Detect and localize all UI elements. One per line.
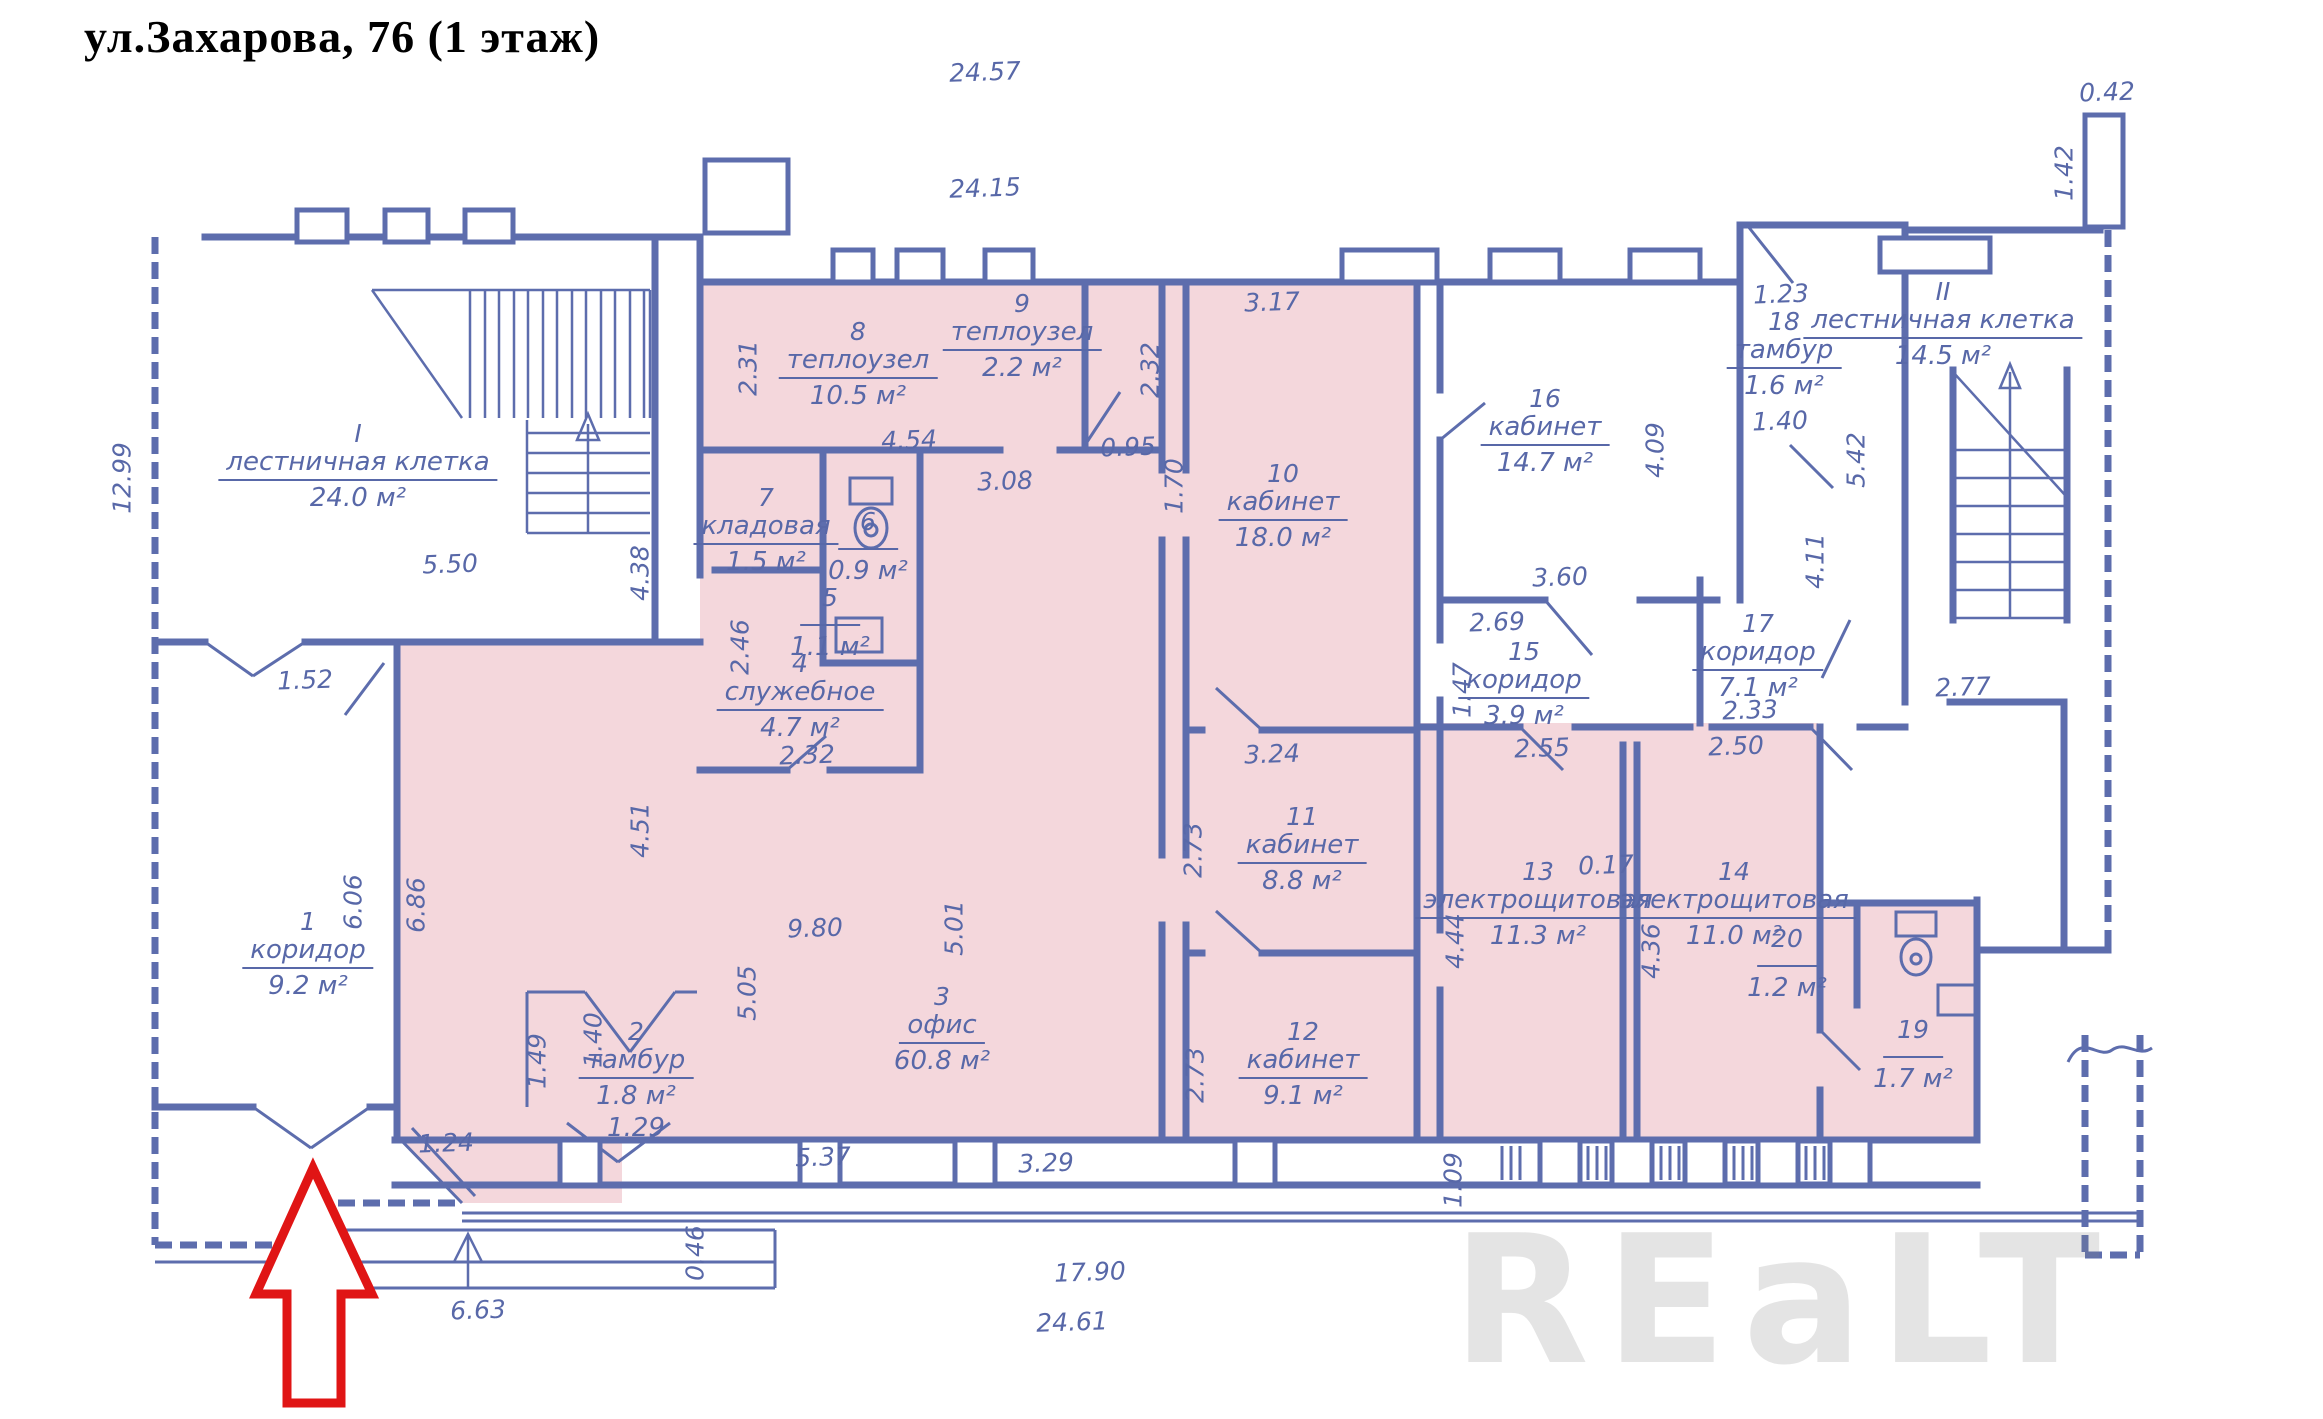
room-label-cabinet-11: 11 кабинет 8.8 м²: [1238, 803, 1367, 896]
bottom-pillars: [560, 1140, 1870, 1185]
room-label-stair-2: II лестничная клетка 14.5 м²: [1803, 278, 2082, 371]
room-number: I: [218, 420, 497, 448]
room-number: 5: [790, 584, 870, 612]
room-name: кабинет: [1239, 1046, 1368, 1079]
room-name: тамбур: [1727, 336, 1842, 369]
dim-label: 2.46: [726, 619, 755, 675]
room-name: коридор: [242, 936, 373, 969]
room-area: 8.8 м²: [1238, 864, 1367, 896]
room-number: II: [1803, 278, 2082, 306]
dim-label: 1.23: [1753, 279, 1810, 310]
realt-watermark: REaLT: [1452, 1212, 2116, 1390]
room-number: 9: [943, 290, 1102, 318]
room-number: 18: [1727, 308, 1842, 336]
floorplan-page: ул.Захарова, 76 (1 этаж) I лестничная кл…: [0, 0, 2323, 1419]
dim-label: 4.44: [1441, 913, 1470, 969]
dim-label: 17.90: [1054, 1256, 1127, 1287]
dim-label: 4.09: [1641, 422, 1670, 478]
room-area: 24.0 м²: [218, 481, 497, 513]
dim-label: 5.05: [733, 965, 762, 1021]
dim-label: 3.08: [977, 466, 1034, 497]
window: [897, 250, 943, 282]
dim-label: 1.40: [1752, 406, 1809, 437]
room-number: 12: [1239, 1018, 1368, 1046]
room-number: 17: [1692, 610, 1823, 638]
room-label-cabinet-12: 12 кабинет 9.1 м²: [1239, 1018, 1368, 1111]
room-label-heat-9: 9 теплоузел 2.2 м²: [943, 290, 1102, 383]
dim-label: 4.11: [1801, 533, 1830, 589]
dim-label: 0.17: [1578, 850, 1635, 881]
dim-label: 2.50: [1708, 731, 1765, 762]
room-label-corridor-15: 15 коридор 3.9 м²: [1458, 638, 1589, 731]
room-number: 16: [1481, 385, 1610, 413]
room-number: 7: [693, 484, 838, 512]
dim-label: 1.24: [418, 1128, 475, 1159]
dim-label: 5.50: [422, 549, 479, 580]
room-area: 9.2 м²: [242, 969, 373, 1001]
roof-protrusion: [705, 160, 788, 233]
dim-label: 3.60: [1532, 562, 1589, 593]
window: [385, 210, 428, 242]
room-name: [1883, 1054, 1943, 1058]
room-name: электрощитовая: [1611, 886, 1856, 919]
room-label-stair-1: I лестничная клетка 24.0 м²: [218, 420, 497, 513]
dimension-marks: [454, 1234, 482, 1288]
windows: [297, 115, 2123, 282]
room-area: 4.7 м²: [717, 711, 884, 743]
room-name: лестничная клетка: [218, 448, 497, 481]
room-area: 1.5 м²: [693, 545, 838, 577]
dim-label: 2.55: [1514, 733, 1571, 764]
window: [297, 210, 347, 242]
dim-label: 4.36: [1637, 923, 1666, 979]
dim-label: 24.15: [949, 172, 1022, 203]
room-area: 60.8 м²: [894, 1044, 990, 1076]
room-area: 0.9 м²: [828, 554, 908, 586]
page-title: ул.Захарова, 76 (1 этаж): [84, 10, 600, 63]
chimney: [2085, 115, 2123, 227]
room-name: коридор: [1458, 666, 1589, 699]
room-number: 15: [1458, 638, 1589, 666]
room-name: [838, 546, 898, 550]
room-number: 14: [1611, 858, 1856, 886]
room-name: [1757, 963, 1817, 967]
dim-label: 3.17: [1244, 287, 1301, 318]
dim-label: 2.31: [734, 340, 763, 396]
dim-label: 0.42: [2079, 77, 2136, 108]
room-area: 18.0 м²: [1219, 521, 1348, 553]
dim-label: 3.24: [1244, 739, 1301, 770]
window: [1342, 250, 1437, 282]
room-area: 2.2 м²: [943, 351, 1102, 383]
room-name: кабинет: [1238, 831, 1367, 864]
room-area: 1.6 м²: [1727, 369, 1842, 401]
dim-label: 4.51: [626, 802, 655, 858]
room-number: 8: [779, 318, 938, 346]
room-name: теплоузел: [779, 346, 938, 379]
dim-label: 2.69: [1469, 607, 1526, 638]
dim-label: 1.47: [1448, 662, 1477, 718]
dim-label: 5.01: [940, 900, 969, 956]
room-name: кабинет: [1219, 488, 1348, 521]
dim-label: 6.86: [402, 877, 431, 933]
window: [833, 250, 873, 282]
room-name: лестничная клетка: [1803, 306, 2082, 339]
dim-label: 0.95: [1100, 432, 1157, 463]
dim-label: 1.40: [579, 1012, 608, 1068]
room-area: 1.7 м²: [1873, 1062, 1953, 1094]
room-label-cabinet-16: 16 кабинет 14.7 м²: [1481, 385, 1610, 478]
room-name: коридор: [1692, 638, 1823, 671]
dim-label: 2.73: [1181, 1047, 1210, 1103]
dim-label: 2.32: [1136, 342, 1165, 398]
window: [985, 250, 1033, 282]
dim-label: 2.32: [779, 740, 836, 771]
dim-label: 9.80: [787, 913, 844, 944]
window: [465, 210, 513, 242]
room-label-office-3: 3 офис 60.8 м²: [894, 983, 990, 1076]
dim-label: 5.37: [795, 1142, 852, 1173]
window: [1490, 250, 1560, 282]
dim-label: 6.63: [450, 1295, 507, 1326]
room-area: 3.9 м²: [1458, 699, 1589, 731]
room-label-storeroom-7: 7 кладовая 1.5 м²: [693, 484, 838, 577]
room-label-20: 20 1.2 м²: [1747, 925, 1827, 1003]
room-area: 1.1 м²: [790, 630, 870, 662]
dim-label: 4.54: [881, 425, 938, 456]
room-label-tambour-18: 18 тамбур 1.6 м²: [1727, 308, 1842, 401]
room-area: 14.5 м²: [1803, 339, 2082, 371]
room-name: офис: [899, 1011, 984, 1044]
room-label-cabinet-10: 10 кабинет 18.0 м²: [1219, 460, 1348, 553]
dim-label: 5.42: [1842, 432, 1871, 488]
dim-label: 2.73: [1179, 822, 1208, 878]
dim-label: 3.29: [1018, 1148, 1075, 1179]
room-name: кабинет: [1481, 413, 1610, 446]
dim-label: 24.57: [949, 56, 1022, 87]
dim-label: 6.06: [339, 874, 368, 930]
dim-label: 0.46: [681, 1225, 710, 1281]
room-name: служебное: [717, 678, 884, 711]
dim-label: 24.61: [1036, 1306, 1109, 1337]
window: [1880, 238, 1990, 272]
room-name: кладовая: [693, 512, 838, 545]
room-label-heat-8: 8 теплоузел 10.5 м²: [779, 318, 938, 411]
dim-label: 12.99: [108, 442, 137, 514]
dim-label: 1.49: [523, 1033, 552, 1089]
room-dim: 1.29: [579, 1111, 694, 1143]
room-name: теплоузел: [943, 318, 1102, 351]
room-number: 10: [1219, 460, 1348, 488]
room-area: 14.7 м²: [1481, 446, 1610, 478]
room-area: 10.5 м²: [779, 379, 938, 411]
dim-label: 2.33: [1722, 695, 1779, 726]
room-area: 9.1 м²: [1239, 1079, 1368, 1111]
staircase-2: [1953, 364, 2067, 618]
room-number: 3: [894, 983, 990, 1011]
dim-label: 1.42: [2050, 145, 2079, 201]
room-number: 11: [1238, 803, 1367, 831]
dim-label: 1.70: [1160, 458, 1189, 514]
room-area: 1.2 м²: [1747, 971, 1827, 1003]
room-number: 6: [828, 508, 908, 536]
room-name: [800, 622, 860, 626]
dim-label: 2.77: [1935, 672, 1992, 703]
room-label-corridor-17: 17 коридор 7.1 м²: [1692, 610, 1823, 703]
room-label-19: 19 1.7 м²: [1873, 1016, 1953, 1094]
room-label-5: 5 1.1 м²: [790, 584, 870, 662]
window: [1630, 250, 1700, 282]
dim-label: 1.52: [277, 665, 334, 696]
room-number: 20: [1747, 925, 1827, 953]
room-area: 1.8 м²: [579, 1079, 694, 1111]
room-number: 19: [1873, 1016, 1953, 1044]
dim-label: 4.38: [626, 545, 655, 601]
room-label-6: 6 0.9 м²: [828, 508, 908, 586]
